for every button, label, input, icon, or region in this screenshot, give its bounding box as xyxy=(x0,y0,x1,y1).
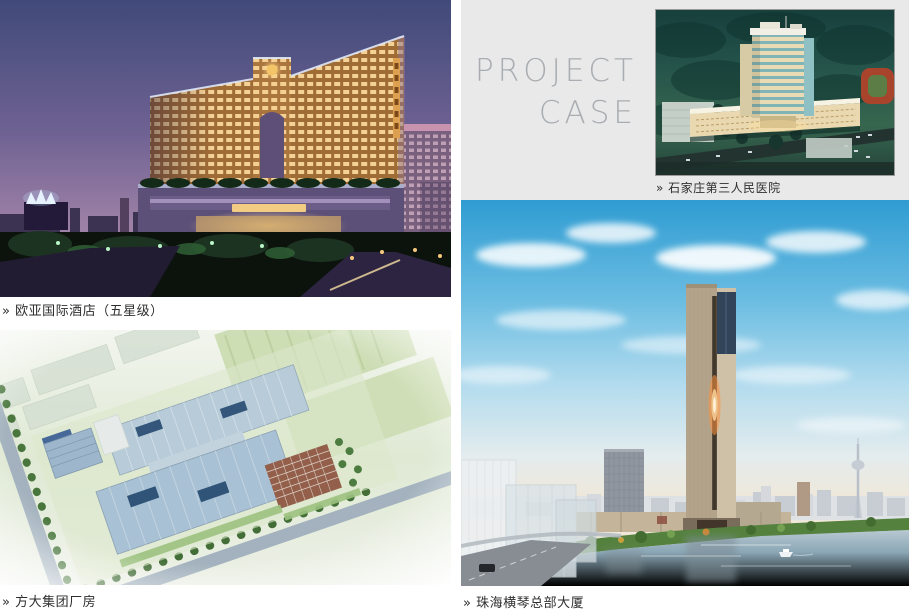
section-title-line2: CASE xyxy=(475,92,637,134)
podium-gold-sign xyxy=(232,204,306,212)
factory-caption: » 方大集团厂房 xyxy=(2,591,96,610)
hospital-photo xyxy=(656,10,894,175)
hospital-tower xyxy=(740,16,814,132)
factory-photo xyxy=(0,330,451,585)
foreground-trees-roads xyxy=(0,231,451,297)
brown-tower xyxy=(797,482,810,516)
autumn-tree xyxy=(703,529,710,536)
residential-towers xyxy=(404,124,451,240)
hospital-caption: » 石家庄第三人民医院 xyxy=(656,179,781,196)
secondary-tower xyxy=(604,449,644,515)
tower-caption: » 珠海横琴总部大厦 xyxy=(463,592,584,611)
brochure-page: » 欧亚国际酒店（五星级） xyxy=(0,0,909,614)
headquarters-tower xyxy=(683,284,740,534)
tower-photo xyxy=(461,200,909,586)
section-title: PROJECT CASE xyxy=(475,50,637,134)
hotel-photo xyxy=(0,0,451,297)
hotel-caption: » 欧亚国际酒店（五星级） xyxy=(2,300,164,319)
hotel-photo-illustration xyxy=(0,0,451,297)
tower-photo-illustration xyxy=(461,200,909,586)
hospital-photo-illustration xyxy=(656,10,894,175)
bottom-road xyxy=(656,162,894,175)
section-title-line1: PROJECT xyxy=(475,50,637,92)
running-track xyxy=(861,68,894,104)
gold-crown-emblem xyxy=(267,65,278,76)
car xyxy=(479,564,495,572)
white-vignette xyxy=(0,330,451,585)
factory-photo-illustration xyxy=(0,330,451,585)
